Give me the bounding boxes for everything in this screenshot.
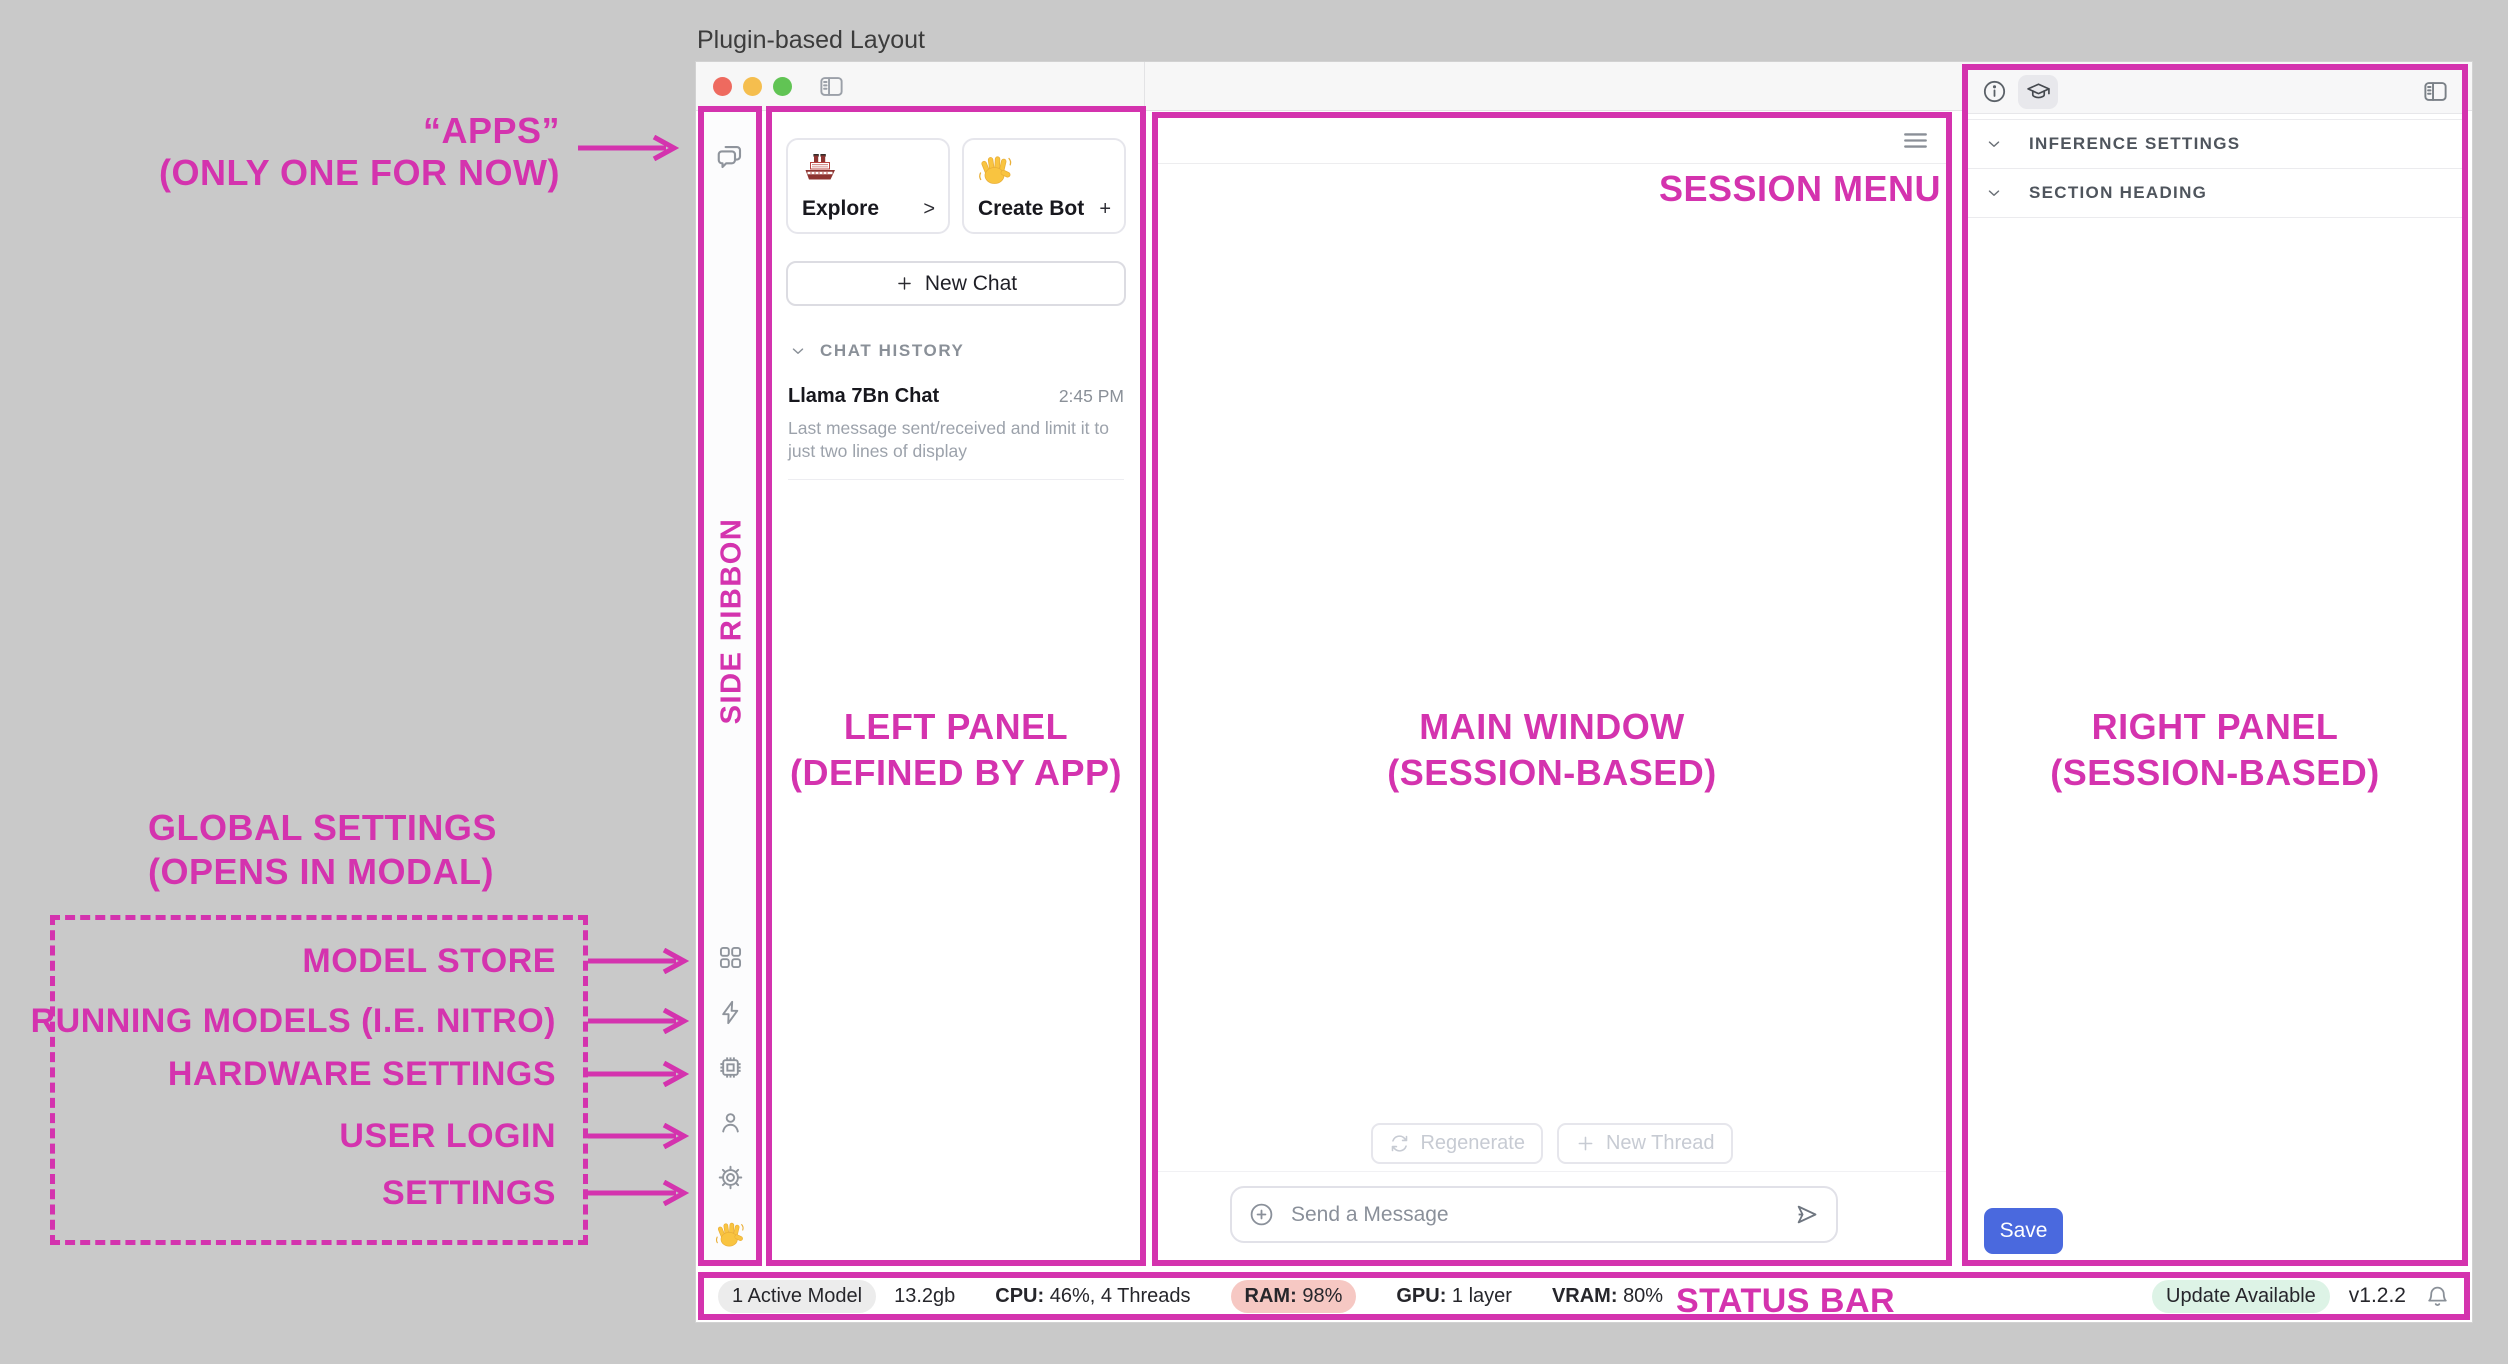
annotation-hardware-settings: HARDWARE SETTINGS bbox=[168, 1054, 556, 1094]
save-button[interactable]: Save bbox=[1984, 1208, 2063, 1254]
cpu-value: 46%, 4 Threads bbox=[1050, 1285, 1191, 1307]
graduation-cap-icon bbox=[2026, 79, 2051, 104]
explore-card[interactable]: Explore > bbox=[786, 138, 950, 234]
inference-settings-section[interactable]: INFERENCE SETTINGS bbox=[1968, 120, 2462, 169]
hardware-settings-icon[interactable] bbox=[717, 1054, 744, 1081]
regenerate-button[interactable]: Regenerate bbox=[1371, 1123, 1543, 1164]
cpu-stat: CPU: 46%, 4 Threads bbox=[995, 1285, 1190, 1308]
gpu-value: 1 layer bbox=[1452, 1285, 1512, 1307]
cpu-label: CPU: bbox=[995, 1285, 1044, 1307]
gpu-stat: GPU: 1 layer bbox=[1396, 1285, 1512, 1308]
send-icon[interactable] bbox=[1793, 1201, 1820, 1228]
chat-history-item[interactable]: Llama 7Bn Chat 2:45 PM Last message sent… bbox=[786, 385, 1126, 480]
new-thread-label: New Thread bbox=[1606, 1132, 1715, 1155]
annotation-apps: “APPS” (ONLY ONE FOR NOW) bbox=[159, 110, 560, 194]
minimize-window-button[interactable] bbox=[743, 77, 762, 96]
annotation-arrow-hardware-settings bbox=[588, 1061, 692, 1087]
version-label: v1.2.2 bbox=[2349, 1284, 2406, 1308]
toggle-right-panel-icon[interactable] bbox=[2422, 78, 2449, 105]
session-menu-bar bbox=[1158, 118, 1946, 164]
annotation-arrow-running-models bbox=[588, 1008, 692, 1034]
maximize-window-button[interactable] bbox=[773, 77, 792, 96]
status-bar: 1 Active Model 13.2gb CPU: 46%, 4 Thread… bbox=[698, 1272, 2470, 1320]
chat-timestamp: 2:45 PM bbox=[1059, 386, 1124, 407]
chevron-down-icon bbox=[1985, 184, 2003, 202]
vram-stat: VRAM: 80% bbox=[1552, 1285, 1663, 1308]
right-panel: MODEL SETTINGS INFERENCE SETTINGS SECTIO… bbox=[1962, 64, 2468, 1266]
user-login-icon[interactable] bbox=[717, 1109, 744, 1136]
wave-emoji bbox=[978, 152, 1014, 188]
app-window: Explore > bbox=[696, 62, 2472, 1322]
ram-label: RAM: bbox=[1245, 1285, 1297, 1307]
regenerate-label: Regenerate bbox=[1420, 1132, 1525, 1155]
annotation-apps-line1: “APPS” bbox=[159, 110, 560, 152]
plus-icon bbox=[1575, 1133, 1596, 1154]
update-available-badge[interactable]: Update Available bbox=[2152, 1280, 2330, 1313]
chat-title: Llama 7Bn Chat bbox=[788, 385, 939, 408]
explore-card-label: Explore bbox=[802, 197, 879, 221]
settings-icon[interactable] bbox=[717, 1164, 744, 1191]
running-models-icon[interactable] bbox=[717, 999, 744, 1026]
annotation-apps-line2: (ONLY ONE FOR NOW) bbox=[159, 152, 560, 194]
ship-emoji bbox=[802, 152, 838, 188]
side-ribbon bbox=[698, 106, 762, 1266]
refresh-icon bbox=[1389, 1133, 1410, 1154]
chat-preview: Last message sent/received and limit it … bbox=[788, 417, 1124, 463]
annotation-arrow-settings bbox=[588, 1180, 692, 1206]
page-title: Plugin-based Layout bbox=[697, 26, 925, 55]
right-panel-header bbox=[1968, 70, 2462, 114]
active-model-badge: 1 Active Model bbox=[718, 1280, 876, 1313]
memory-usage: 13.2gb bbox=[894, 1285, 955, 1308]
chat-app-icon[interactable] bbox=[715, 142, 745, 172]
message-input[interactable] bbox=[1289, 1202, 1779, 1228]
left-panel: Explore > bbox=[766, 106, 1146, 1266]
attach-plus-icon[interactable] bbox=[1248, 1201, 1275, 1228]
input-area-divider bbox=[1158, 1171, 1946, 1172]
create-bot-card-plus: + bbox=[1099, 198, 1111, 221]
inference-settings-label: INFERENCE SETTINGS bbox=[2029, 134, 2240, 154]
notifications-bell-icon[interactable] bbox=[2425, 1284, 2450, 1309]
hamburger-menu-icon[interactable] bbox=[1901, 126, 1930, 155]
ram-value: 98% bbox=[1302, 1285, 1342, 1307]
chevron-down-icon bbox=[1985, 135, 2003, 153]
create-bot-card[interactable]: Create Bot + bbox=[962, 138, 1126, 234]
new-thread-button[interactable]: New Thread bbox=[1557, 1123, 1733, 1164]
annotation-arrow-user-login bbox=[588, 1123, 692, 1149]
annotation-arrow-apps bbox=[578, 135, 682, 161]
design-canvas: Plugin-based Layout bbox=[0, 0, 2508, 1364]
annotation-settings: SETTINGS bbox=[382, 1173, 556, 1213]
list-divider bbox=[788, 479, 1124, 480]
section-heading-section[interactable]: SECTION HEADING bbox=[1968, 169, 2462, 218]
new-chat-label: New Chat bbox=[925, 272, 1017, 296]
annotation-user-login: USER LOGIN bbox=[339, 1116, 556, 1156]
thread-actions-row: Regenerate New Thread bbox=[1158, 1123, 1946, 1164]
annotation-model-store: MODEL STORE bbox=[302, 941, 556, 981]
wave-emoji[interactable] bbox=[715, 1219, 746, 1250]
explore-card-chevron: > bbox=[923, 198, 935, 221]
gpu-label: GPU: bbox=[1396, 1285, 1446, 1307]
annotation-running-models: RUNNING MODELS (I.E. NITRO) bbox=[31, 1001, 556, 1041]
plus-icon bbox=[895, 274, 914, 293]
annotation-global-settings: GLOBAL SETTINGS (OPENS IN MODAL) bbox=[148, 806, 497, 894]
section-heading-label: SECTION HEADING bbox=[2029, 183, 2207, 203]
assistant-tab-active[interactable] bbox=[2018, 75, 2058, 109]
annotation-arrow-model-store bbox=[588, 948, 692, 974]
toggle-sidebar-icon[interactable] bbox=[818, 73, 845, 100]
main-window: Regenerate New Thread bbox=[1152, 112, 1952, 1266]
chat-history-label: CHAT HISTORY bbox=[820, 341, 965, 361]
close-window-button[interactable] bbox=[713, 77, 732, 96]
message-input-container bbox=[1230, 1186, 1838, 1243]
app-cards-row: Explore > bbox=[786, 138, 1126, 234]
new-chat-button[interactable]: New Chat bbox=[786, 261, 1126, 306]
vram-value: 80% bbox=[1623, 1285, 1663, 1307]
model-store-icon[interactable] bbox=[717, 944, 744, 971]
create-bot-card-label: Create Bot bbox=[978, 197, 1084, 221]
chevron-down-icon bbox=[789, 342, 807, 360]
chat-history-header[interactable]: CHAT HISTORY bbox=[786, 341, 1126, 361]
annotation-global-settings-box bbox=[50, 915, 588, 1245]
info-icon[interactable] bbox=[1981, 78, 2008, 105]
ram-badge: RAM: 98% bbox=[1231, 1280, 1357, 1313]
titlebar-divider bbox=[1144, 62, 1145, 110]
vram-label: VRAM: bbox=[1552, 1285, 1618, 1307]
